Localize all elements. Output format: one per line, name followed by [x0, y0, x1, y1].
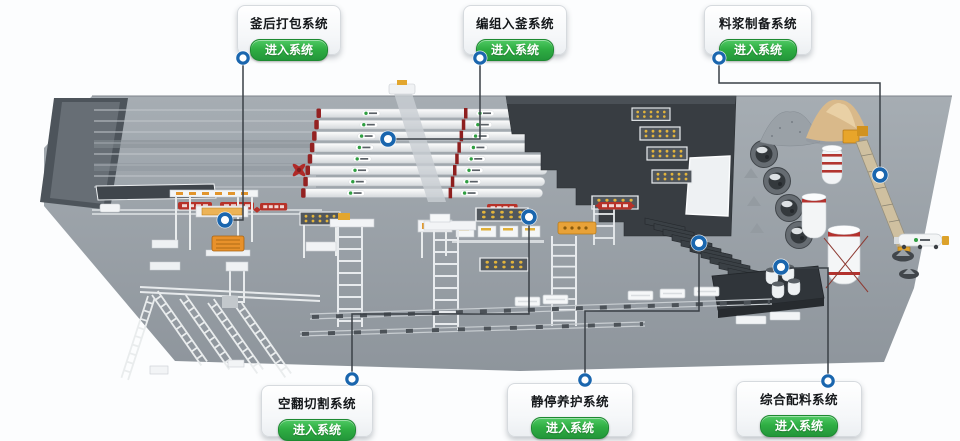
orange-machine — [206, 236, 250, 256]
card-title: 编组入釜系统 — [464, 13, 566, 32]
card-title: 静停养护系统 — [508, 391, 632, 410]
enter-system-button[interactable]: 进入系统 — [278, 419, 356, 441]
card-slurry-preparation: 料浆制备系统 进入系统 — [704, 5, 812, 55]
card-post-autoclave-packing: 釜后打包系统 进入系统 — [237, 5, 341, 55]
card-title: 料浆制备系统 — [705, 13, 811, 32]
card-grouping-into-autoclave: 编组入釜系统 进入系统 — [463, 5, 567, 55]
enter-system-button[interactable]: 进入系统 — [531, 417, 609, 439]
enter-system-button[interactable]: 进入系统 — [250, 39, 328, 61]
plant-3d-scene — [0, 0, 960, 441]
card-flip-cutting: 空翻切割系统 进入系统 — [261, 385, 373, 437]
card-title: 釜后打包系统 — [238, 13, 340, 32]
card-title: 综合配料系统 — [737, 389, 861, 408]
enter-system-button[interactable]: 进入系统 — [760, 415, 838, 437]
enter-system-button[interactable]: 进入系统 — [476, 39, 554, 61]
enter-system-button[interactable]: 进入系统 — [719, 39, 797, 61]
tank-truck — [894, 234, 949, 249]
white-curing-slab — [686, 156, 730, 216]
card-pre-curing: 静停养护系统 进入系统 — [507, 383, 633, 437]
card-title: 空翻切割系统 — [262, 393, 372, 412]
route-banner — [595, 202, 635, 210]
card-integrated-batching: 综合配料系统 进入系统 — [736, 381, 862, 437]
